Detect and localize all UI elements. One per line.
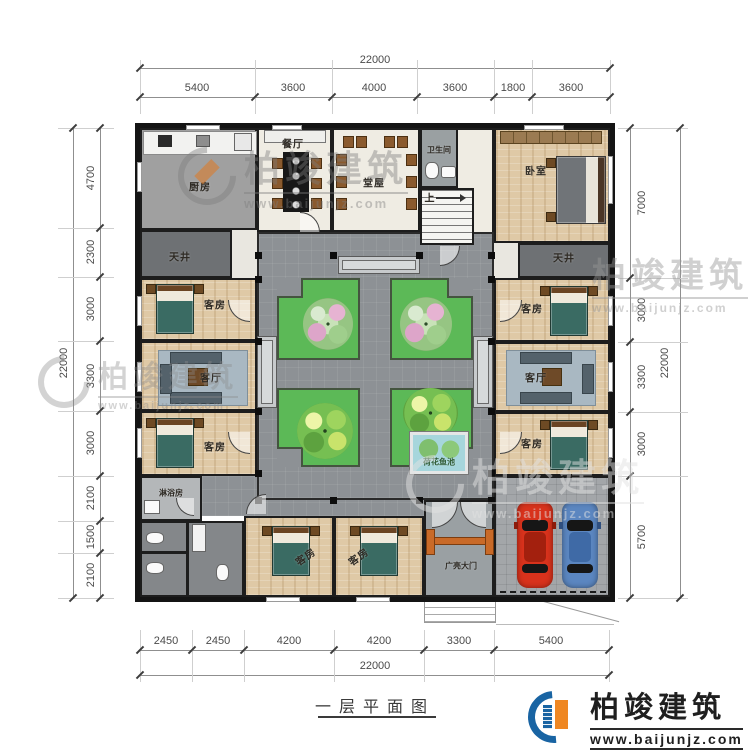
dim-left-seg: 2100 (85, 486, 97, 510)
dim-left-seg: 2100 (85, 563, 97, 587)
dim-bottom-seg: 2450 (206, 635, 230, 647)
room-label-kitchen: 厨房 (189, 179, 211, 194)
dim-right-seg: 7000 (636, 191, 648, 215)
room-label-bathroom: 卫生间 (427, 145, 451, 156)
room-label-hall: 堂屋 (363, 175, 385, 190)
dim-top-seg: 3600 (281, 82, 305, 94)
brand-logo: 柏竣建筑 www.baijunjz.com (528, 684, 743, 750)
dim-top-seg: 5400 (185, 82, 209, 94)
room-label-skywell-right: 天井 (553, 250, 575, 265)
sheet-caption: 一层平面图 (315, 693, 435, 717)
dim-left-seg: 3300 (85, 364, 97, 388)
dim-top-overall: 22000 (360, 54, 391, 66)
watermark-brand: 柏竣建筑 (592, 248, 748, 297)
dim-right-seg: 3000 (636, 298, 648, 322)
stairs-up-label: 上 (425, 190, 436, 205)
room-label-gate: 广亮大门 (445, 561, 477, 572)
dim-right-seg: 5700 (636, 525, 648, 549)
room-label-dining: 餐厅 (282, 136, 304, 151)
dim-bottom-seg: 4200 (367, 635, 391, 647)
dim-left-seg: 2300 (85, 240, 97, 264)
sheet-caption-underline (318, 716, 436, 718)
dim-left-seg: 1500 (85, 525, 97, 549)
gate-steps (424, 599, 496, 623)
room-label-bedroom: 卧室 (525, 163, 547, 178)
dim-top-seg: 3600 (559, 82, 583, 94)
room-label-guest: 客房 (521, 436, 543, 451)
dim-left-seg: 3000 (85, 297, 97, 321)
dim-left-overall: 22000 (58, 348, 70, 379)
dim-right-overall: 22000 (659, 348, 671, 379)
brand-logo-url: www.baijunjz.com (590, 728, 743, 750)
dim-bottom-seg: 5400 (539, 635, 563, 647)
dim-right-seg: 3300 (636, 365, 648, 389)
dim-bottom-seg: 2450 (154, 635, 178, 647)
room-label-living-right: 客厅 (525, 370, 547, 385)
floor-plan-sheet: 22000 5400 3600 4000 3600 1800 3600 2200… (0, 0, 750, 750)
dim-left-seg: 3000 (85, 431, 97, 455)
garage-door-dashed (500, 591, 606, 593)
dim-left-seg: 4700 (85, 166, 97, 190)
room-label-living-left: 客厅 (200, 370, 222, 385)
dim-top-seg: 1800 (501, 82, 525, 94)
dim-top-seg: 4000 (362, 82, 386, 94)
room-label-guest: 客房 (521, 301, 543, 316)
room-label-guest: 客房 (204, 439, 226, 454)
dim-right-seg: 3000 (636, 432, 648, 456)
room-label-skywell-left: 天井 (169, 249, 191, 264)
watermark: 柏竣建筑 www.baijunjz.com (592, 248, 748, 315)
watermark-url: www.baijunjz.com (592, 297, 748, 315)
dim-top-seg: 3600 (443, 82, 467, 94)
dim-bottom-overall: 22000 (360, 660, 391, 672)
brand-logo-icon (528, 691, 580, 743)
pond-label: 荷花鱼池 (423, 457, 455, 468)
room-label-guest: 客房 (204, 297, 226, 312)
room-label-shower: 淋浴房 (159, 488, 183, 499)
dim-bottom-seg: 4200 (277, 635, 301, 647)
brand-logo-text: 柏竣建筑 (590, 684, 743, 726)
dim-bottom-seg: 3300 (447, 635, 471, 647)
perimeter-wall (135, 123, 615, 602)
